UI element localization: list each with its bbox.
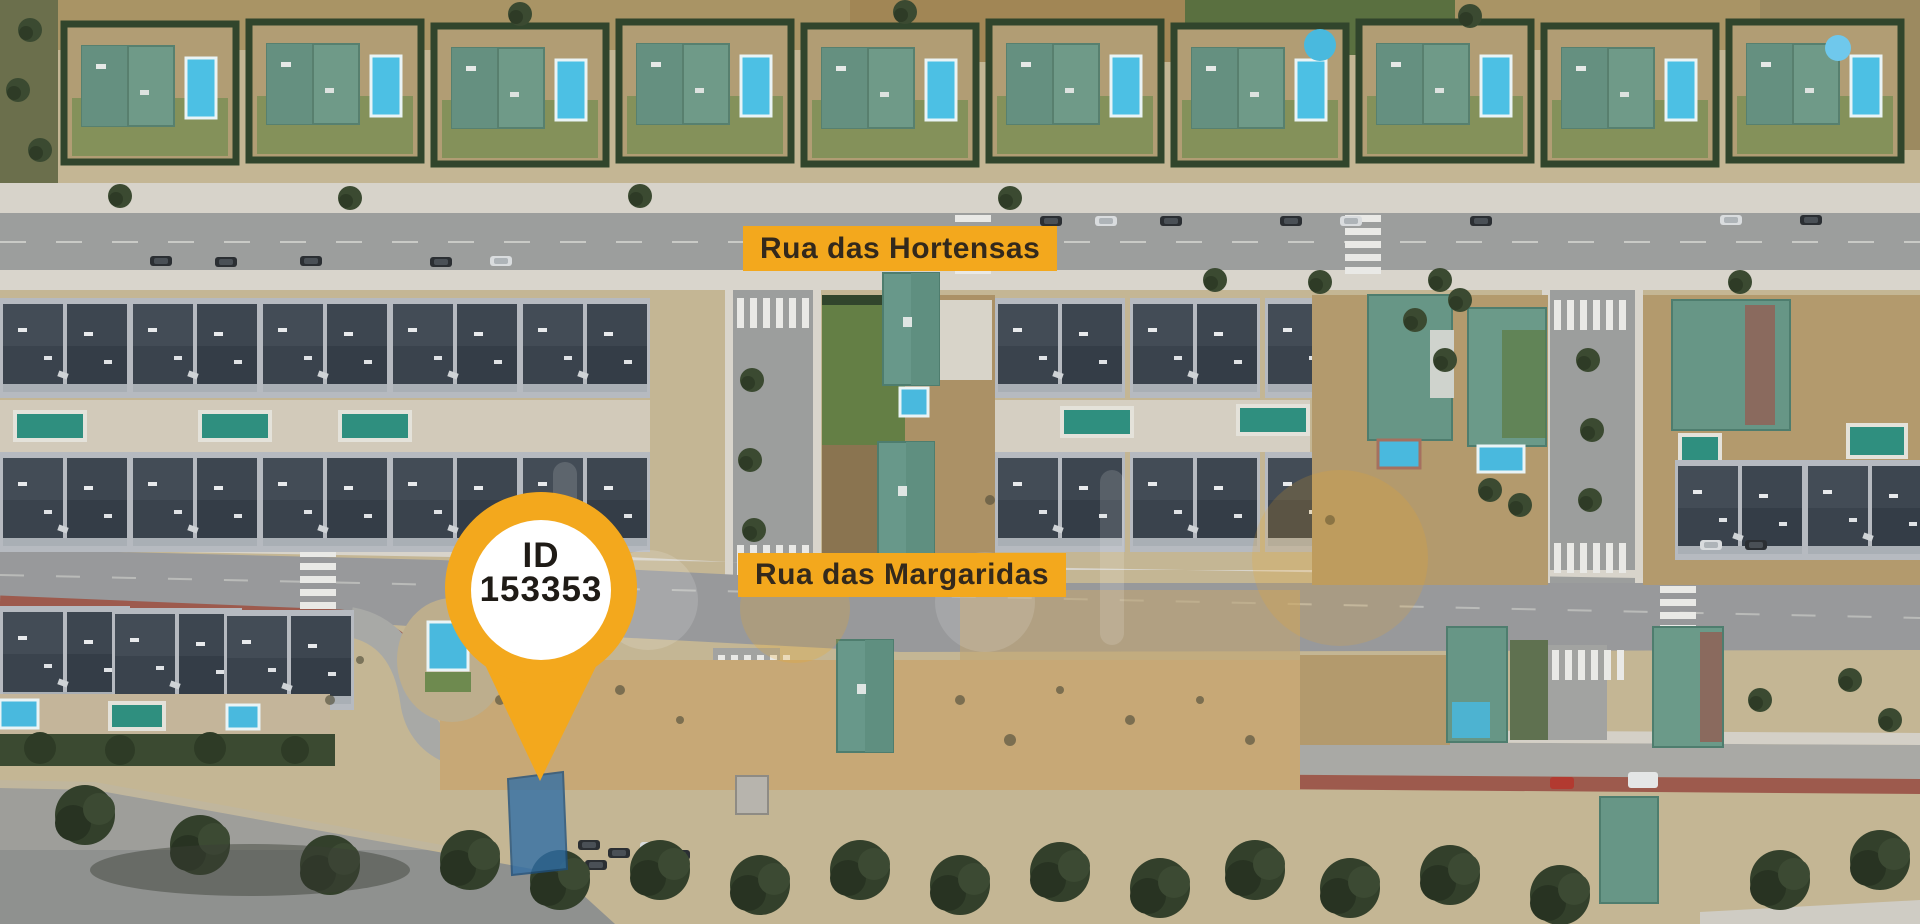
pin-id-value: 153353 xyxy=(480,570,603,609)
block-far-east xyxy=(1643,295,1920,585)
listing-map-image[interactable]: ID 153353 Rua das Hortensas Rua das Marg… xyxy=(0,0,1920,924)
street-label-margaridas: Rua das Margaridas xyxy=(738,553,1066,597)
satellite-imagery: ID 153353 xyxy=(0,0,1920,924)
parcel-highlight[interactable] xyxy=(508,772,567,875)
street-label-hortensas: Rua das Hortensas xyxy=(743,226,1057,271)
garden-block-center xyxy=(822,273,995,585)
